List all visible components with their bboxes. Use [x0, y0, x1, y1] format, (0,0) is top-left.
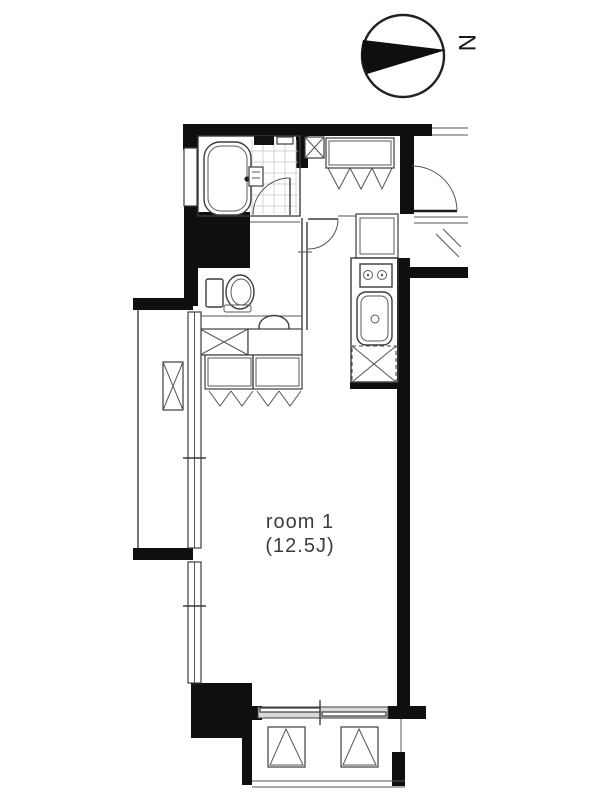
shoe-closet	[326, 138, 394, 189]
wall-right-main	[397, 258, 410, 708]
shower-mixer-icon	[249, 167, 263, 186]
wall-balcony-top	[133, 298, 193, 310]
wall-top	[183, 124, 432, 136]
wall-right-upper	[400, 130, 414, 214]
kitchen-sink-icon	[357, 292, 392, 345]
shoe-closet-bifold-icon	[328, 168, 392, 189]
floorplan-svg: N	[0, 0, 600, 800]
planter-box-left	[268, 727, 305, 767]
washer-space	[200, 329, 302, 355]
wall-block-toilet-corner	[198, 212, 250, 268]
balcony-sliding-door	[258, 700, 388, 725]
left-balcony	[138, 310, 206, 548]
entry-door-swing-arc	[412, 166, 457, 211]
compass-north-label: N	[453, 34, 480, 51]
floorplan-canvas: N	[0, 0, 600, 800]
wall-balcony-bottom	[133, 548, 193, 560]
wall-top-left	[183, 124, 198, 150]
room-name: room 1	[266, 511, 334, 533]
entry-door	[412, 166, 457, 211]
wall-cap-bottom-right	[388, 706, 426, 719]
stove-icon	[360, 264, 392, 287]
refrigerator-space-icon	[352, 346, 396, 382]
planter-box-right	[341, 727, 378, 767]
closet-bifold-icon	[209, 391, 301, 406]
north-arrow-icon	[361, 40, 446, 74]
pipe-shaft	[305, 137, 324, 158]
corridor-lines	[414, 128, 468, 257]
bathtub-icon	[204, 142, 251, 215]
shoe-closet-box	[326, 138, 394, 168]
wall-bath-left-lower	[184, 204, 198, 306]
bathroom	[198, 136, 300, 222]
wall-kitchen-bottom-bar	[350, 382, 398, 389]
toilet-icon	[206, 275, 254, 312]
wall-left-lower	[242, 738, 252, 785]
washroom-door-swing-arc	[308, 219, 338, 249]
compass: N	[361, 15, 480, 97]
wall-bottom-left-block	[191, 683, 252, 738]
bottom-balcony	[252, 700, 405, 787]
bath-left-window	[184, 148, 197, 206]
room-label: room 1 (12.5J)	[265, 511, 334, 557]
kitchen-cabinet-icon	[356, 214, 398, 258]
sliding-window-lower	[183, 562, 206, 683]
wall-right-stub	[398, 267, 468, 278]
shelf-icon	[277, 137, 293, 144]
closet	[205, 355, 302, 406]
kitchen	[351, 214, 398, 382]
room-size: (12.5J)	[265, 535, 334, 557]
counter-box	[248, 329, 302, 355]
vent-icon	[254, 136, 274, 145]
